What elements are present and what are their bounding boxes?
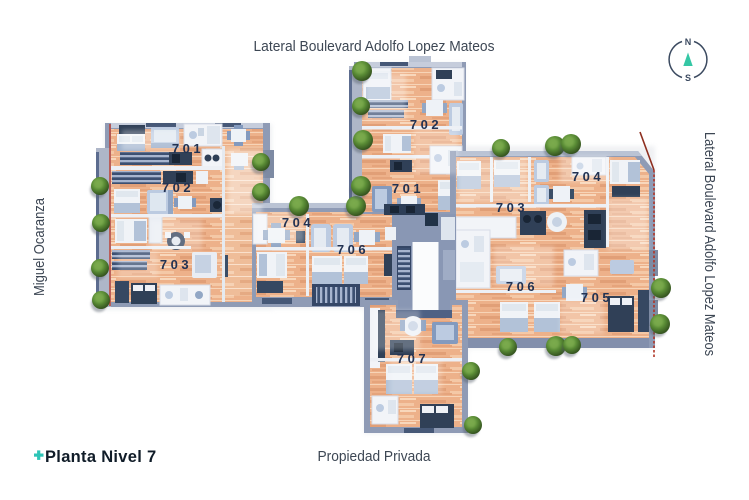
svg-text:701: 701 xyxy=(172,141,204,156)
svg-text:Propiedad Privada: Propiedad Privada xyxy=(318,448,432,465)
svg-text:703: 703 xyxy=(160,257,192,272)
svg-text:S: S xyxy=(685,73,691,83)
svg-text:702: 702 xyxy=(410,117,442,132)
svg-text:Lateral Boulevard Adolfo Lopez: Lateral Boulevard Adolfo Lopez Mateos xyxy=(701,132,718,356)
svg-text:Lateral Boulevard Adolfo Lopez: Lateral Boulevard Adolfo Lopez Mateos xyxy=(254,38,495,55)
svg-text:702: 702 xyxy=(162,180,194,195)
svg-text:706: 706 xyxy=(337,242,369,257)
svg-text:703: 703 xyxy=(496,200,528,215)
svg-text:Planta Nivel 7: Planta Nivel 7 xyxy=(45,448,157,466)
svg-text:704: 704 xyxy=(572,169,604,184)
svg-text:707: 707 xyxy=(397,351,429,366)
svg-text:N: N xyxy=(685,37,692,47)
svg-text:704: 704 xyxy=(282,215,314,230)
svg-text:706: 706 xyxy=(506,279,538,294)
svg-text:701: 701 xyxy=(392,181,424,196)
svg-text:705: 705 xyxy=(581,290,613,305)
svg-text:Miguel Ocaranza: Miguel Ocaranza xyxy=(31,197,48,296)
